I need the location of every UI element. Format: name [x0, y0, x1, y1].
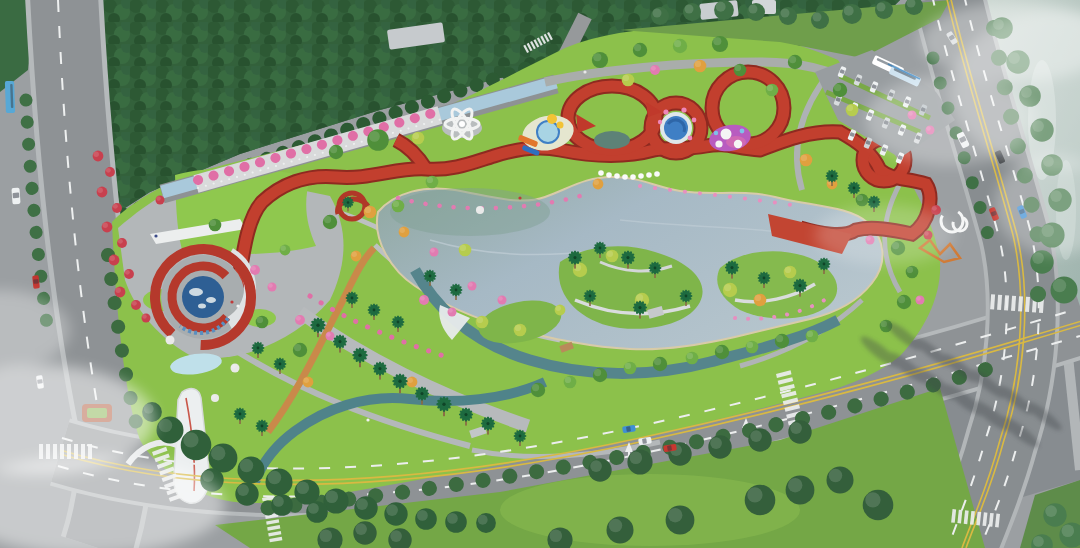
world-map-pond [182, 276, 224, 318]
white-van [11, 188, 20, 205]
red-car [32, 275, 40, 289]
rendering-canvas [0, 0, 1080, 548]
play-dome [721, 129, 732, 140]
play-figure [547, 114, 557, 124]
city-bus [5, 81, 15, 113]
park-aerial-rendering [0, 0, 1080, 548]
